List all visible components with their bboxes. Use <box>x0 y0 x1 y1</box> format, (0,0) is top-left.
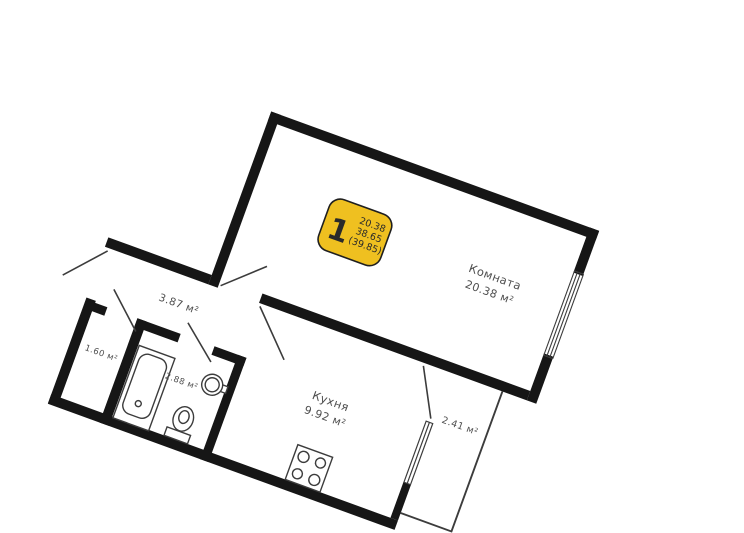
door-swing-entrance <box>63 239 108 286</box>
door-swing-balcony <box>407 366 447 419</box>
wall-corridor-top <box>105 237 212 284</box>
wall-bath-top-1 <box>91 302 107 315</box>
door-swing-kitchen <box>246 306 299 359</box>
hallway-area: 3.87 м² <box>157 292 200 318</box>
window-balcony-icon <box>404 421 433 484</box>
floor-plan-drawing: Комната 20.38 м² Кухня 9.92 м² 3.87 м² 1… <box>0 0 744 533</box>
toilet-icon <box>164 403 199 444</box>
door-swing-bathroom <box>178 323 221 362</box>
wall-bathroom-right <box>200 355 246 462</box>
wall-room-top <box>268 111 599 240</box>
bathroom-area: 2.88 м² <box>163 371 199 392</box>
floor-plan-canvas: Комната 20.38 м² Кухня 9.92 м² 3.87 м² 1… <box>0 0 744 533</box>
wall-room-bottom <box>259 293 530 400</box>
fixtures <box>113 345 346 493</box>
balcony-area: 2.41 м² <box>440 415 479 438</box>
wall-room-right-lower <box>527 353 553 403</box>
window-living-room-icon <box>544 271 584 359</box>
balcony-outline <box>401 373 503 531</box>
wall-room-left <box>208 111 280 287</box>
storage-area: 1.60 м² <box>83 343 119 364</box>
unit-badge: 1 20.38 38.65 (39.85) <box>315 196 395 269</box>
